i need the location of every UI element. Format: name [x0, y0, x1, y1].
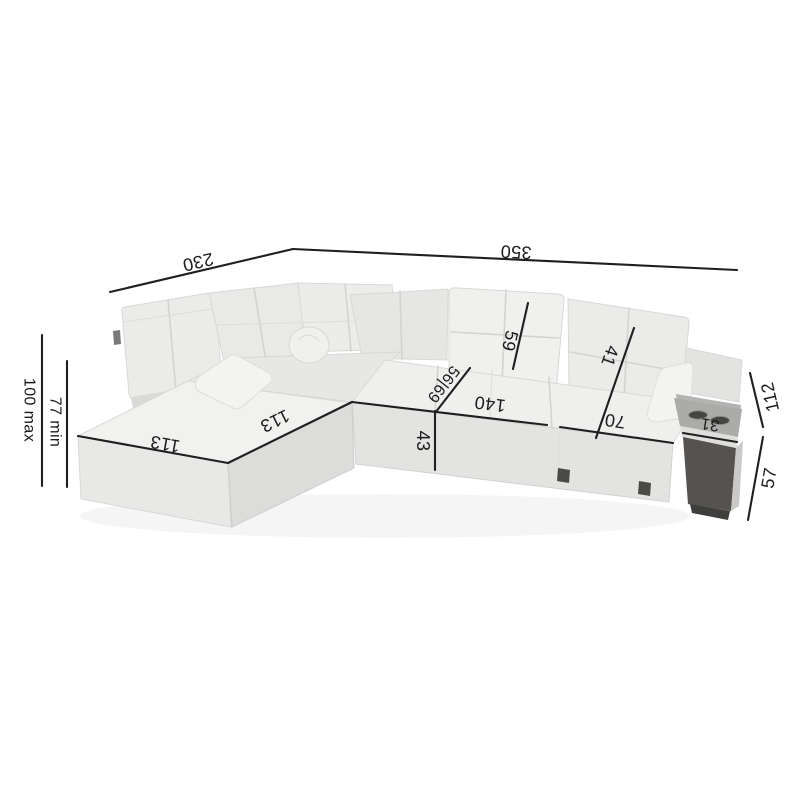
- side-table: [674, 394, 743, 520]
- dimension-label-total-width: 350: [500, 241, 532, 263]
- sofa-foot: [638, 481, 651, 496]
- dimension-label-right-seat: 70: [603, 410, 626, 433]
- dimension-label-seat-height: 43: [413, 431, 433, 452]
- headrest-hinge: [113, 330, 121, 345]
- dimension-label-center-seat: 140: [473, 392, 506, 416]
- dimension-label-table-width: 31: [699, 414, 720, 434]
- sofa-dimension-diagram: 350 230 100 max 77 min 113 113 140 70 43…: [0, 0, 800, 800]
- dimension-label-table-upper: 112: [757, 380, 783, 414]
- sofa-foot: [557, 468, 570, 483]
- dimension-label-table-lower: 57: [757, 466, 780, 490]
- bolster-cushion: [289, 327, 329, 363]
- dimension-label-height-max: 100 max: [21, 378, 38, 442]
- sofa-illustration: [78, 283, 743, 538]
- diagram-canvas: 350 230 100 max 77 min 113 113 140 70 43…: [0, 0, 800, 800]
- dimension-label-total-depth: 230: [181, 249, 216, 276]
- table-front-face: [683, 437, 736, 511]
- dimension-label-height-min: 77 min: [47, 397, 64, 447]
